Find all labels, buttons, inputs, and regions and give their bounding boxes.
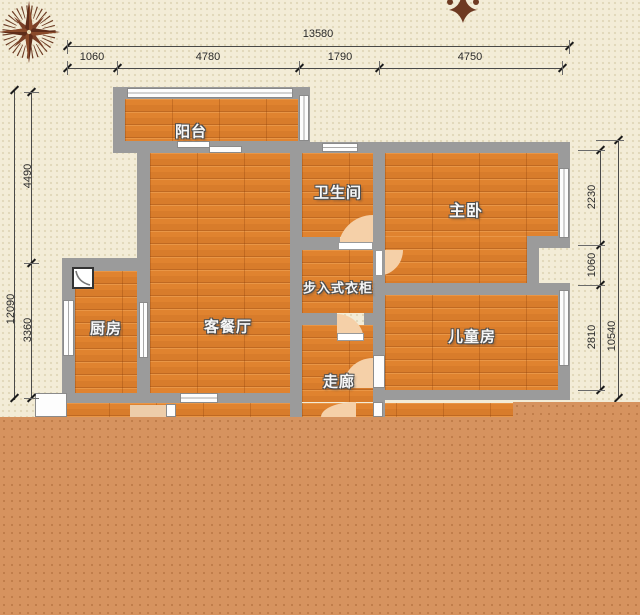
dim-guide: [24, 398, 39, 399]
children-window: [559, 290, 569, 366]
balcony-side-window: [299, 95, 309, 141]
dim-guide: [569, 40, 570, 54]
dim-line-top-segments: [67, 68, 562, 69]
wall: [137, 141, 150, 403]
dim-line-right-segments: [600, 150, 601, 390]
floral-ornament-icon: [440, 0, 486, 24]
entry-window: [180, 393, 218, 403]
dim-label-top-seg3: 4750: [458, 51, 482, 63]
children-door-opening: [373, 355, 385, 388]
wall: [364, 313, 385, 325]
door-mat: [130, 405, 166, 417]
dim-guide: [299, 61, 300, 75]
wall: [373, 390, 570, 400]
dim-label-right-seg0: 2230: [586, 185, 598, 209]
dim-label-top-total: 13580: [303, 28, 334, 40]
bathroom-window: [322, 143, 358, 152]
dim-label-right-seg1: 1060: [586, 253, 598, 277]
room-label-closet: 步入式衣柜: [303, 278, 373, 297]
dim-guide: [67, 40, 68, 54]
floor-plan-canvas: 阳台 卫生间 主卧 步入式衣柜 厨房 客餐厅 儿童房 走廊 13580 1060…: [0, 0, 640, 615]
dim-line-top-total: [67, 46, 569, 47]
dim-guide: [596, 140, 624, 141]
dim-guide: [562, 61, 563, 75]
dim-label-right-total: 10540: [606, 321, 618, 352]
lower-window: [35, 393, 67, 417]
bathroom-door-leaf: [338, 242, 373, 250]
dim-guide: [578, 285, 605, 286]
room-label-master: 主卧: [449, 197, 483, 221]
lower-opening: [373, 402, 383, 417]
dim-guide: [379, 61, 380, 75]
wall: [373, 142, 385, 250]
sliding-door-panel: [209, 146, 242, 153]
dim-guide: [67, 61, 68, 75]
dim-guide: [24, 263, 39, 264]
dim-label-left-seg1: 3360: [22, 318, 34, 342]
dim-line-left-segments: [31, 92, 32, 398]
wall: [302, 237, 340, 250]
kitchen-window: [63, 300, 74, 356]
dim-label-left-total: 12090: [5, 294, 17, 325]
dim-label-top-seg2: 1790: [328, 51, 352, 63]
room-label-bathroom: 卫生间: [314, 182, 362, 203]
bottom-overlay: [513, 402, 640, 418]
dim-guide: [578, 390, 605, 391]
bottom-overlay: [0, 417, 640, 615]
master-door-leaf: [375, 250, 383, 276]
room-label-children: 儿童房: [448, 326, 496, 347]
room-label-kitchen: 厨房: [90, 318, 122, 339]
sliding-door-panel: [177, 141, 210, 148]
wall: [373, 283, 570, 295]
dim-label-right-seg2: 2810: [586, 325, 598, 349]
room-label-corridor: 走廊: [323, 371, 355, 392]
living-floor: [150, 153, 290, 403]
room-label-balcony: 阳台: [175, 121, 207, 142]
kitchen-pass-window: [139, 302, 148, 358]
lower-floor-strip: [62, 403, 302, 417]
dim-guide: [578, 245, 605, 246]
master-floor: [385, 153, 558, 236]
balcony-window: [127, 88, 293, 98]
wall: [302, 313, 337, 325]
dim-label-left-seg0: 4490: [22, 164, 34, 188]
dim-guide: [578, 150, 605, 151]
closet-door-leaf: [337, 333, 364, 341]
balcony-floor: [125, 99, 298, 141]
lower-door-panel: [166, 404, 176, 417]
dim-line-right-total: [618, 140, 619, 398]
master-floor: [385, 236, 527, 283]
master-window: [559, 168, 569, 238]
compass-rose-icon: [0, 1, 60, 63]
dim-guide: [24, 92, 39, 93]
dim-guide: [117, 61, 118, 75]
dim-label-top-seg1: 4780: [196, 51, 220, 63]
corner-basin-icon: [72, 267, 94, 289]
wall: [290, 142, 302, 417]
dim-label-top-seg0: 1060: [80, 51, 104, 63]
dim-tick: [10, 393, 19, 402]
dim-line-left-total: [14, 90, 15, 400]
room-label-living: 客餐厅: [204, 316, 252, 337]
